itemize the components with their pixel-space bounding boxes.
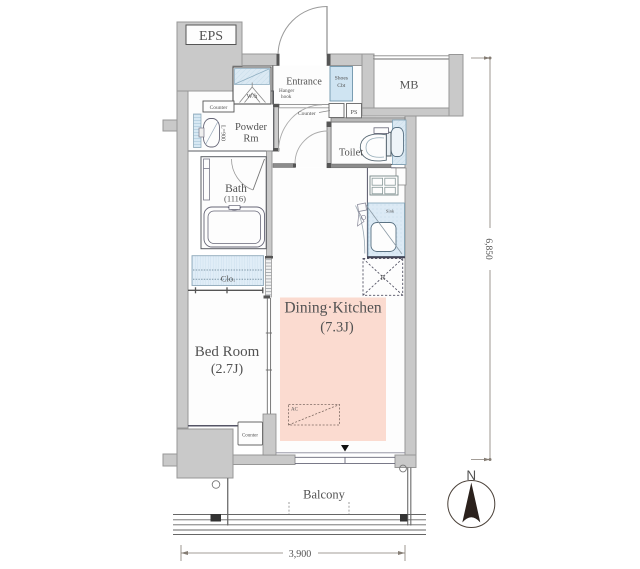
svg-text:3,900: 3,900	[289, 549, 312, 560]
svg-text:Entrance: Entrance	[286, 77, 322, 88]
svg-text:R: R	[381, 274, 386, 282]
svg-text:Clo.: Clo.	[221, 274, 235, 284]
svg-text:Shoes: Shoes	[335, 76, 348, 82]
svg-text:Counter: Counter	[298, 111, 316, 117]
svg-text:N: N	[466, 468, 476, 483]
svg-text:Bed Room: Bed Room	[195, 344, 260, 360]
svg-text:L=900: L=900	[220, 125, 226, 141]
svg-text:Toilet: Toilet	[339, 148, 363, 159]
svg-text:hook: hook	[281, 94, 292, 100]
svg-text:Rm: Rm	[243, 134, 258, 145]
svg-text:EPS: EPS	[199, 29, 223, 44]
svg-text:(1116): (1116)	[224, 194, 246, 204]
svg-text:(7.3J): (7.3J)	[320, 320, 354, 336]
svg-text:PS: PS	[351, 109, 358, 116]
svg-text:Dining·Kitchen: Dining·Kitchen	[284, 300, 382, 317]
svg-text:AC: AC	[291, 408, 299, 413]
svg-text:MB: MB	[400, 78, 419, 92]
svg-text:6,850: 6,850	[483, 238, 493, 260]
svg-text:(2.7J): (2.7J)	[211, 362, 244, 377]
svg-text:Powder: Powder	[235, 122, 268, 133]
svg-text:Cbt: Cbt	[337, 83, 346, 89]
svg-text:Sink: Sink	[386, 209, 395, 214]
svg-text:Counter: Counter	[210, 105, 228, 111]
svg-text:W/h: W/h	[247, 93, 259, 100]
svg-text:Balcony: Balcony	[303, 488, 345, 502]
svg-text:Counter: Counter	[242, 434, 258, 439]
